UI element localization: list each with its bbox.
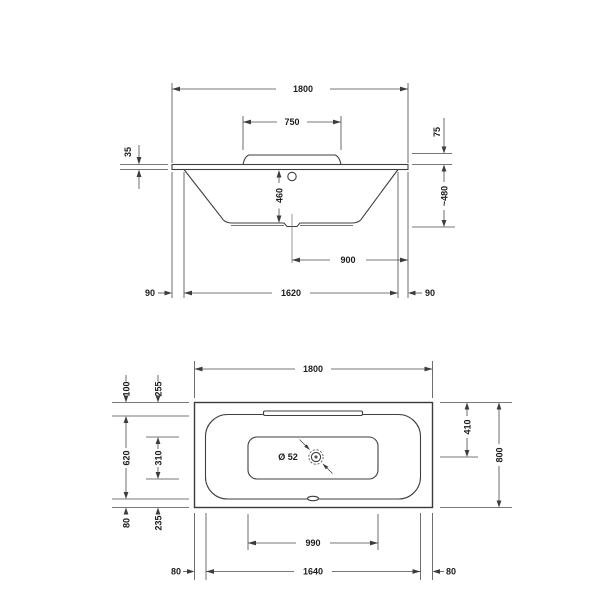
dim-base-length: 1620: [184, 288, 398, 298]
dim-label-800: 800: [495, 447, 505, 462]
overflow-hole: [288, 172, 296, 180]
dim-rim-thickness: 35: [123, 145, 141, 189]
dim-drain-to-end: 900: [292, 255, 408, 265]
technical-drawing-page: 1800 750 35: [0, 0, 600, 600]
dim-overhang-right: 90: [408, 288, 435, 298]
dim-side-overall-length: 1800: [172, 84, 408, 94]
bathtub-technical-drawing: 1800 750 35: [0, 0, 600, 600]
dim-overall-width: 800: [495, 403, 505, 508]
dim-plan-overall-length: 1800: [195, 364, 433, 374]
dim-floor-inset-bottom: 235: [154, 508, 164, 531]
dim-rim-width-top: 100: [122, 375, 132, 403]
dim-floor-inset-top: 255: [154, 375, 164, 403]
dim-overhang-left: 90: [145, 288, 172, 298]
plan-view: 1800 Ø 52 100 620: [112, 361, 512, 580]
dim-label-900: 900: [340, 255, 355, 265]
dim-label-1800-plan: 1800: [303, 364, 323, 374]
dim-label-990: 990: [305, 538, 320, 548]
dim-rim-width-bottom: 80: [122, 508, 132, 529]
backrest-profile: [243, 155, 341, 165]
dim-label-480: ~480: [440, 186, 450, 206]
dim-label-620: 620: [122, 450, 132, 465]
dim-label-1800-side: 1800: [293, 84, 313, 94]
dim-label-80-right: 80: [446, 567, 456, 577]
dim-label-1620: 1620: [281, 288, 301, 298]
dim-drain-from-top: 410: [463, 403, 473, 458]
dim-label-410: 410: [463, 419, 473, 434]
dim-label-75: 75: [432, 127, 442, 137]
dim-label-35: 35: [123, 147, 133, 157]
dim-floor-length: 990: [248, 538, 378, 548]
dim-inner-width: 620: [122, 416, 132, 499]
headrest-bar: [264, 411, 363, 416]
dim-label-310: 310: [154, 450, 164, 465]
dim-label-255: 255: [154, 381, 164, 396]
dim-inner-length: 1640: [206, 567, 421, 577]
dim-backrest-width: 750: [243, 117, 341, 127]
dim-label-100: 100: [122, 381, 132, 396]
overflow-marker: [308, 496, 319, 500]
dim-label-235: 235: [154, 515, 164, 530]
dim-label-750: 750: [284, 117, 299, 127]
dim-label-80-bottom: 80: [122, 518, 132, 528]
side-elevation-view: 1800 750 35: [120, 83, 455, 298]
dim-label-1640: 1640: [303, 567, 323, 577]
dim-label-drain-diameter: Ø 52: [278, 452, 298, 462]
dim-label-90-right: 90: [425, 288, 435, 298]
rim-flange: [172, 165, 408, 170]
dim-label-460: 460: [275, 188, 285, 203]
dim-rim-width-left: 80: [171, 567, 195, 577]
dim-overall-height: ~480: [440, 165, 450, 228]
dim-label-80-left: 80: [171, 567, 181, 577]
dim-rim-width-right: 80: [433, 567, 457, 577]
dim-backrest-height: 75: [432, 118, 446, 154]
dim-floor-width: 310: [154, 437, 164, 479]
dim-label-90-left: 90: [145, 288, 155, 298]
